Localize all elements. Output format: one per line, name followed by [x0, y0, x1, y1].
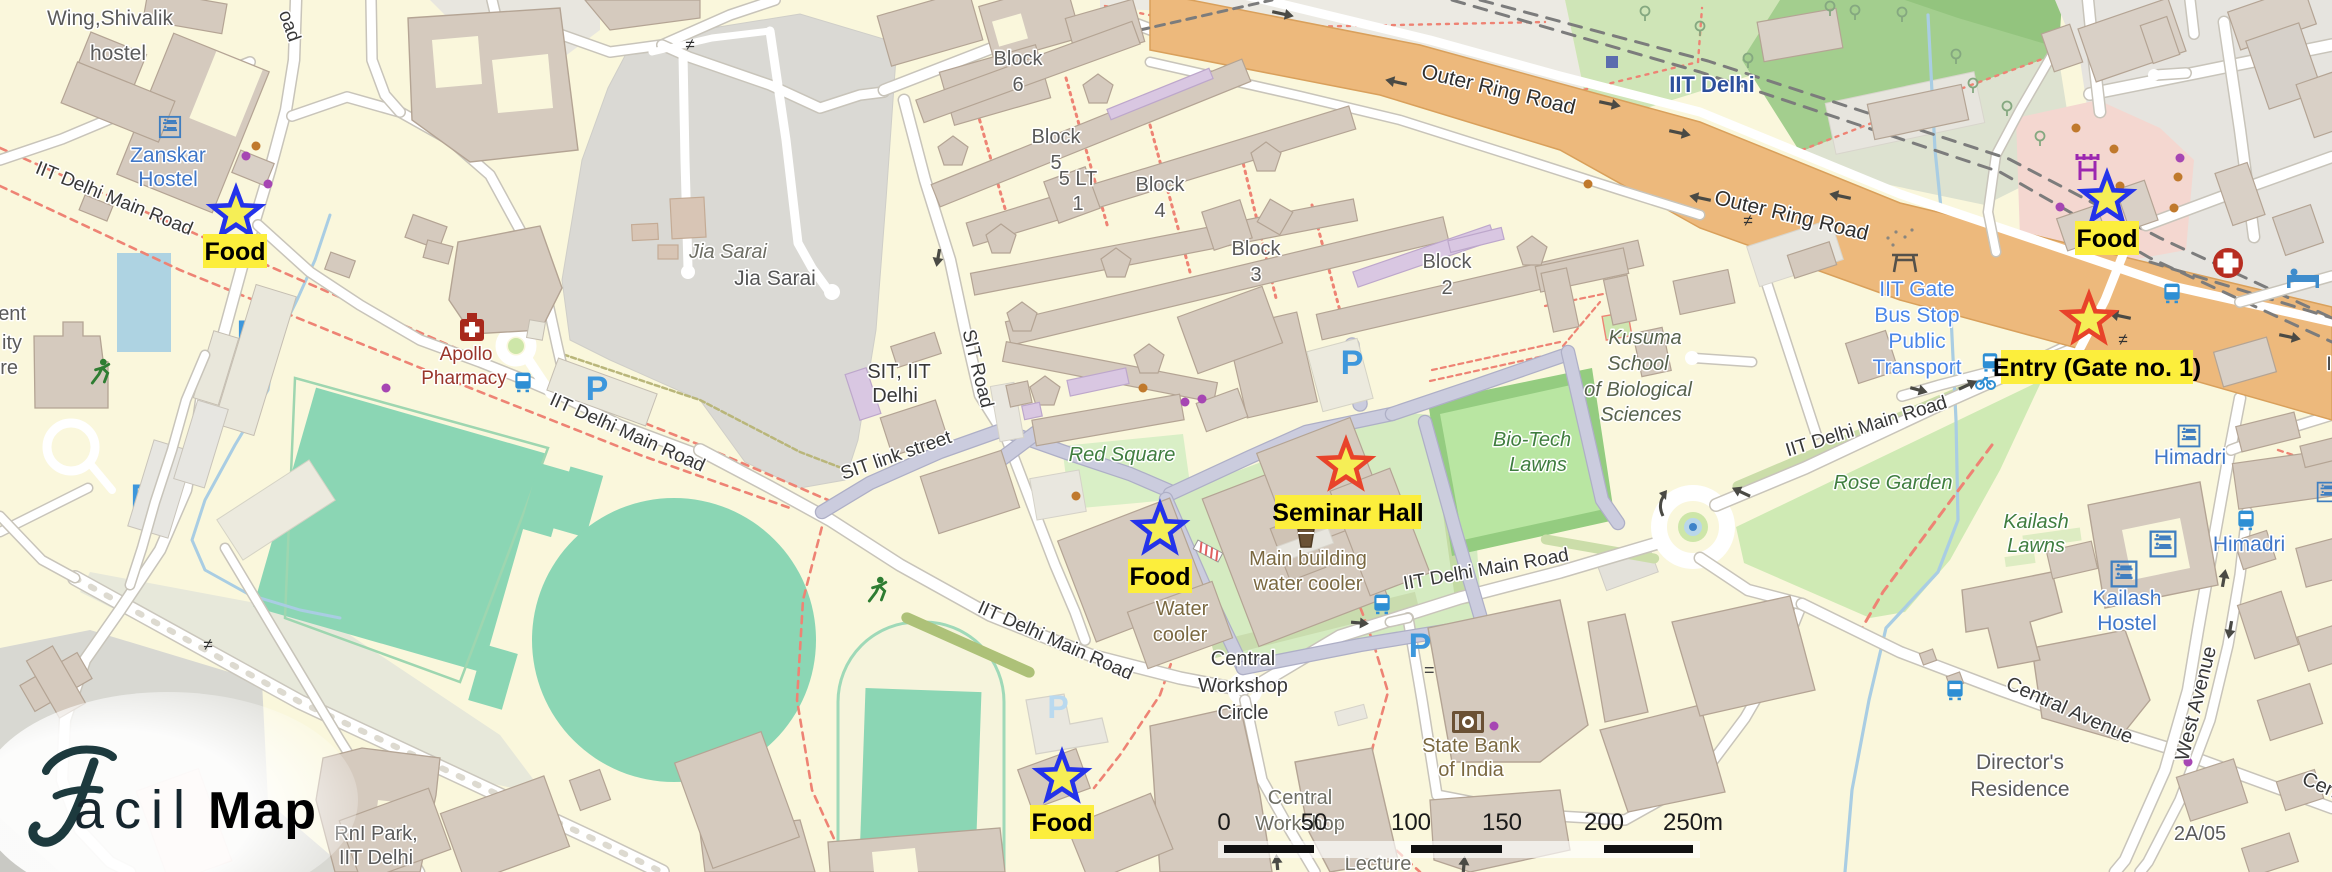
svg-text:School: School	[1607, 353, 1669, 375]
svg-text:acil: acil	[74, 780, 195, 840]
svg-text:0: 0	[1217, 809, 1230, 836]
svg-text:≠: ≠	[2118, 330, 2127, 349]
svg-text:Block: Block	[994, 48, 1044, 70]
svg-text:Entry (Gate no. 1): Entry (Gate no. 1)	[1993, 354, 2201, 382]
svg-text:IIT Gate: IIT Gate	[1879, 278, 1954, 301]
svg-text:Himadri: Himadri	[2154, 446, 2226, 469]
svg-text:Seminar Hall: Seminar Hall	[1272, 499, 1423, 527]
svg-text:Red Square: Red Square	[1069, 444, 1176, 466]
svg-text:Jia Sarai: Jia Sarai	[734, 267, 816, 290]
svg-text:Food: Food	[1129, 563, 1190, 591]
svg-text:State Bank: State Bank	[1422, 735, 1521, 757]
svg-text:P: P	[1341, 344, 1364, 382]
svg-text:2: 2	[1441, 277, 1452, 299]
svg-text:Central: Central	[1211, 648, 1275, 670]
svg-text:ent: ent	[0, 303, 26, 325]
svg-text:4: 4	[1154, 200, 1165, 222]
svg-text:Main building: Main building	[1249, 548, 1367, 570]
svg-text:SIT, IIT: SIT, IIT	[867, 361, 930, 383]
svg-text:Transport: Transport	[1872, 356, 1961, 379]
svg-text:Lawns: Lawns	[2007, 535, 2065, 557]
svg-text:Block: Block	[1423, 251, 1473, 273]
svg-text:water cooler: water cooler	[1253, 573, 1363, 595]
svg-text:6: 6	[1012, 74, 1023, 96]
svg-text:re: re	[0, 357, 18, 379]
svg-text:Kailash: Kailash	[2003, 511, 2069, 533]
svg-text:50: 50	[1301, 809, 1328, 836]
svg-text:Lawns: Lawns	[1509, 454, 1567, 476]
svg-text:Sciences: Sciences	[1600, 404, 1681, 426]
svg-text:Food: Food	[2076, 225, 2137, 253]
svg-text:Delhi: Delhi	[872, 385, 918, 407]
svg-text:250m: 250m	[1663, 809, 1723, 836]
svg-text:Bio-Tech: Bio-Tech	[1493, 429, 1571, 451]
svg-text:3: 3	[1250, 264, 1261, 286]
svg-text:Block: Block	[1232, 238, 1282, 260]
svg-text:Wing,Shivalik: Wing,Shivalik	[47, 7, 174, 30]
svg-text:Hostel: Hostel	[138, 168, 198, 191]
svg-text:Bus Stop: Bus Stop	[1874, 304, 1959, 327]
svg-text:IIT Delhi: IIT Delhi	[339, 847, 413, 869]
svg-text:Residence: Residence	[1970, 778, 2069, 801]
svg-text:5 LT: 5 LT	[1059, 168, 1098, 190]
svg-text:150: 150	[1482, 809, 1522, 836]
svg-text:Pharmacy: Pharmacy	[421, 368, 507, 389]
svg-text:≠: ≠	[685, 35, 694, 54]
svg-text:cooler: cooler	[1153, 624, 1208, 646]
svg-text:hostel: hostel	[90, 42, 146, 65]
svg-text:Circle: Circle	[1217, 702, 1268, 724]
svg-text:200: 200	[1584, 809, 1624, 836]
svg-text:Himadri: Himadri	[2213, 533, 2285, 556]
svg-text:Block: Block	[1136, 174, 1186, 196]
svg-text:of India: of India	[1438, 759, 1504, 781]
svg-text:Public: Public	[1888, 330, 1945, 353]
svg-text:P: P	[1047, 689, 1068, 725]
svg-text:Map: Map	[208, 782, 318, 840]
svg-text:Director's: Director's	[1976, 751, 2064, 774]
svg-text:≠: ≠	[203, 635, 212, 654]
svg-text:of Biological: of Biological	[1584, 379, 1692, 401]
svg-text:Food: Food	[1031, 809, 1092, 837]
svg-text:P: P	[586, 370, 609, 408]
svg-text:=: =	[1424, 660, 1435, 680]
svg-text:1: 1	[1072, 193, 1083, 215]
svg-text:Central: Central	[1268, 787, 1332, 809]
svg-text:Workshop: Workshop	[1198, 675, 1288, 697]
svg-text:Block: Block	[1032, 126, 1082, 148]
svg-text:Hostel: Hostel	[2097, 612, 2157, 635]
svg-text:Zanskar: Zanskar	[130, 144, 206, 167]
svg-text:ity: ity	[2, 332, 22, 354]
svg-text:Jia Sarai: Jia Sarai	[688, 241, 767, 263]
svg-text:Food: Food	[204, 238, 265, 266]
svg-text:Kusuma: Kusuma	[1608, 327, 1681, 349]
svg-text:Rose Garden: Rose Garden	[1834, 472, 1953, 494]
svg-text:100: 100	[1391, 809, 1431, 836]
svg-text:IIT Delhi: IIT Delhi	[1669, 72, 1755, 97]
svg-text:2A/05: 2A/05	[2174, 823, 2226, 845]
svg-text:Kailash: Kailash	[2093, 587, 2162, 610]
svg-text:I: I	[2326, 354, 2331, 375]
svg-text:Water: Water	[1156, 598, 1209, 620]
svg-text:Apollo: Apollo	[440, 344, 493, 365]
